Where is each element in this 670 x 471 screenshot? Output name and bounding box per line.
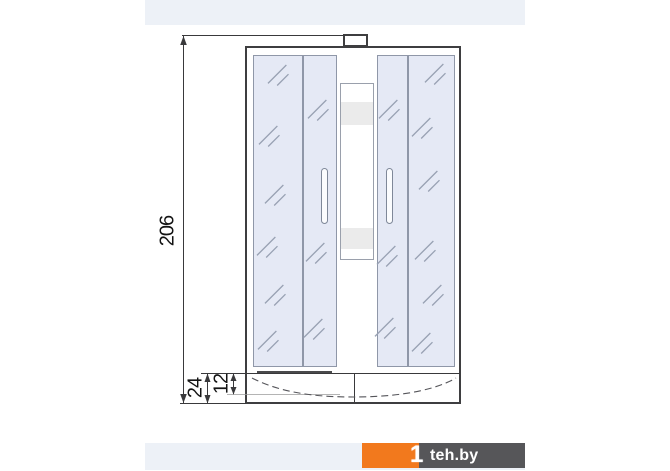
column-shelf-band — [341, 228, 373, 249]
cabinet-top-cap — [343, 34, 368, 47]
door-handle-right — [386, 168, 393, 224]
glass-panel-left-fixed — [253, 55, 303, 367]
central-shower-column — [340, 83, 374, 260]
glass-panel-right-fixed — [408, 55, 455, 367]
watermark-text: teh.by — [419, 447, 478, 465]
dimension-label-tray-height: 24 — [185, 378, 208, 398]
photo-top-strip — [145, 0, 525, 25]
column-shelf-band — [341, 102, 373, 125]
glass-door-left — [303, 55, 337, 367]
watermark-digit: 1 — [410, 441, 423, 469]
dimension-arrows — [180, 36, 236, 404]
dimension-label-height: 206 — [157, 216, 180, 246]
product-image: 206 24 12 teh.by 1 — [0, 0, 670, 471]
watermark-dark-block: teh.by — [419, 443, 525, 468]
dimension-label-basin-depth: 12 — [211, 374, 234, 394]
watermark-logo: teh.by 1 — [362, 443, 525, 468]
door-handle-left — [321, 168, 328, 224]
